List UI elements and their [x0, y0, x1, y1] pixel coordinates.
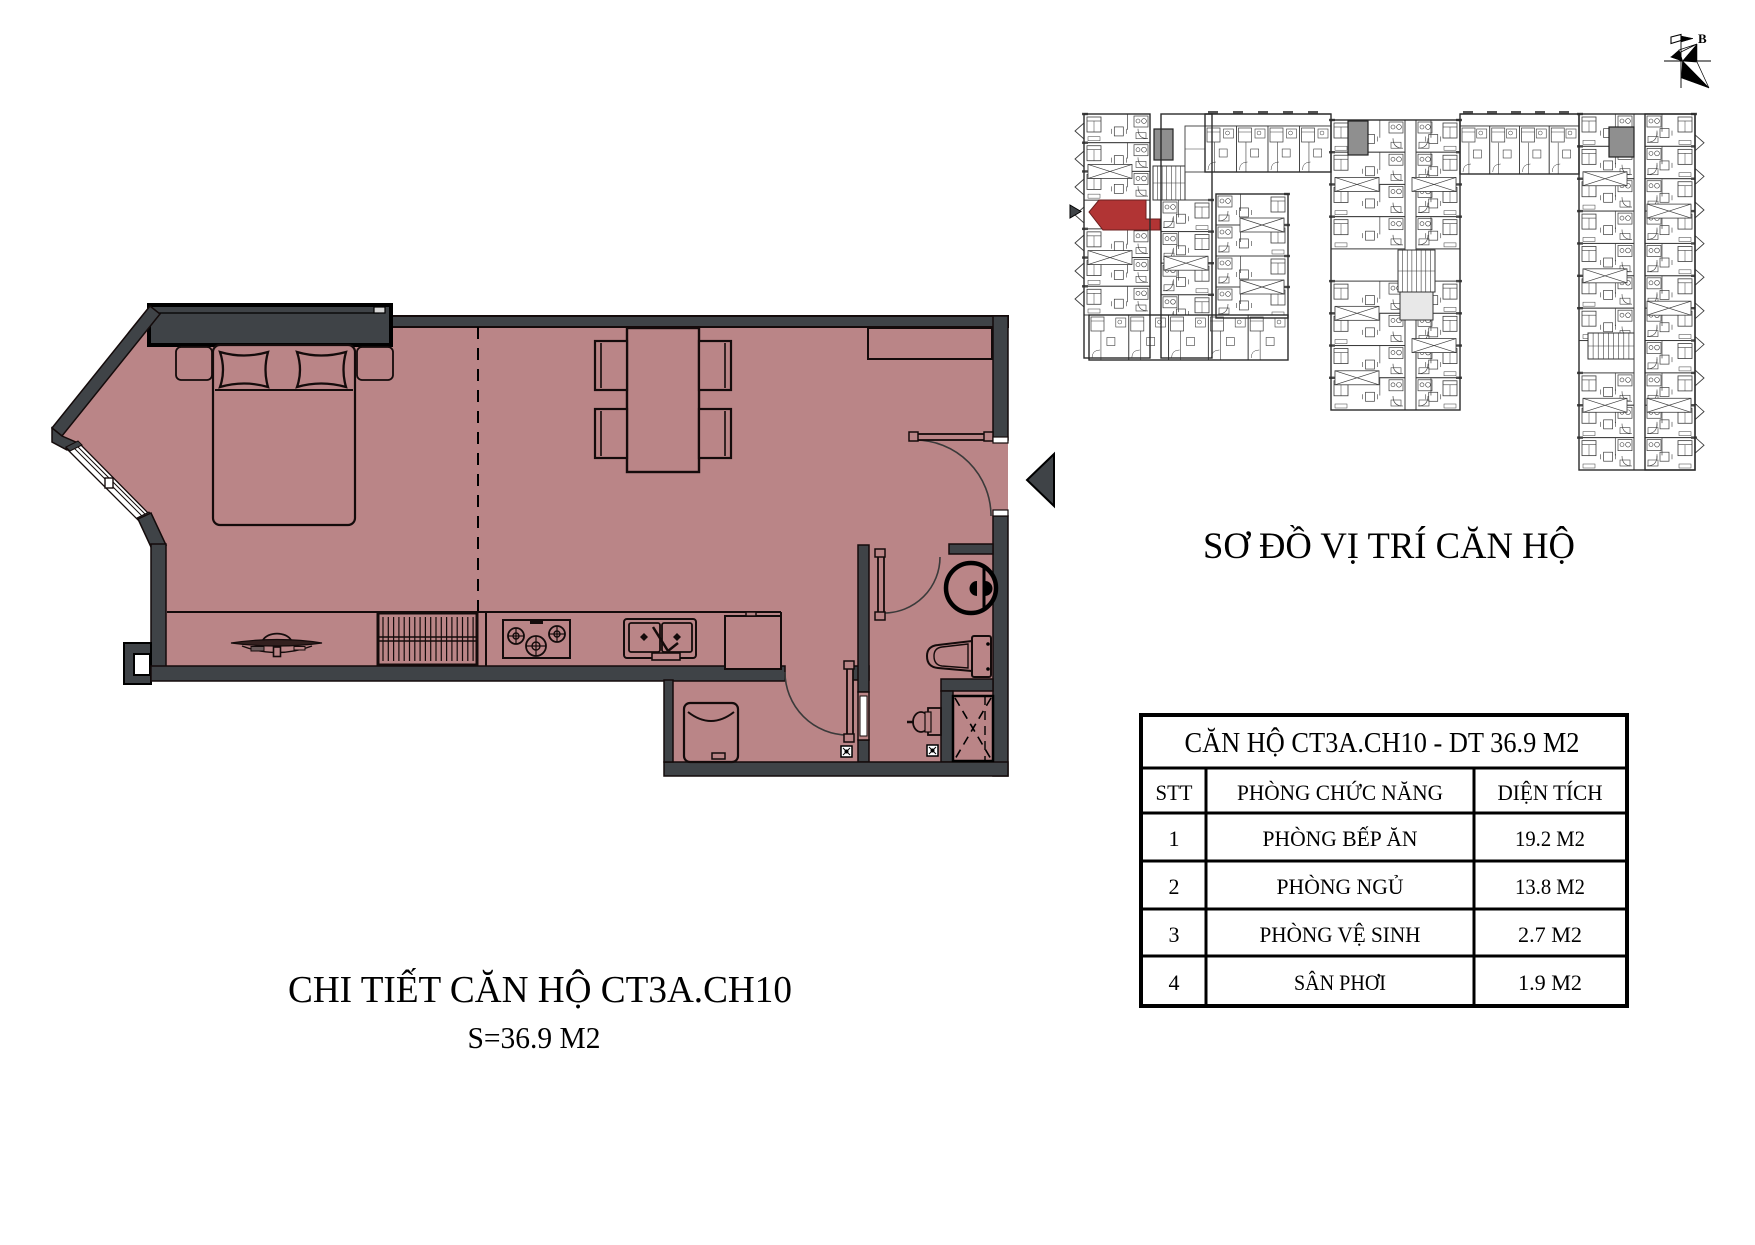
svg-text:PHÒNG NGỦ: PHÒNG NGỦ — [1277, 874, 1404, 899]
svg-text:SƠ ĐỒ VỊ TRÍ CĂN HỘ: SƠ ĐỒ VỊ TRÍ CĂN HỘ — [1203, 523, 1575, 567]
svg-text:CHI TIẾT CĂN HỘ CT3A.CH10: CHI TIẾT CĂN HỘ CT3A.CH10 — [288, 968, 792, 1011]
svg-text:PHÒNG BẾP ĂN: PHÒNG BẾP ĂN — [1263, 826, 1418, 851]
svg-text:19.2 M2: 19.2 M2 — [1515, 826, 1585, 851]
svg-text:4: 4 — [1169, 970, 1180, 995]
svg-text:CĂN HỘ CT3A.CH10 - DT 36.9 M2: CĂN HỘ CT3A.CH10 - DT 36.9 M2 — [1185, 726, 1580, 759]
svg-text:2: 2 — [1169, 874, 1180, 899]
svg-text:13.8 M2: 13.8 M2 — [1515, 874, 1585, 899]
svg-text:DIỆN TÍCH: DIỆN TÍCH — [1498, 780, 1603, 805]
svg-text:PHÒNG CHỨC NĂNG: PHÒNG CHỨC NĂNG — [1237, 780, 1443, 805]
svg-text:2.7 M2: 2.7 M2 — [1518, 922, 1582, 947]
svg-text:S=36.9 M2: S=36.9 M2 — [468, 1020, 601, 1055]
svg-text:1.9 M2: 1.9 M2 — [1518, 970, 1582, 995]
svg-text:1: 1 — [1169, 826, 1180, 851]
svg-text:STT: STT — [1156, 780, 1194, 805]
svg-text:SÂN PHƠI: SÂN PHƠI — [1294, 970, 1386, 995]
svg-text:PHÒNG VỆ SINH: PHÒNG VỆ SINH — [1260, 922, 1421, 947]
svg-text:3: 3 — [1169, 922, 1180, 947]
svg-text:B: B — [1698, 31, 1707, 46]
